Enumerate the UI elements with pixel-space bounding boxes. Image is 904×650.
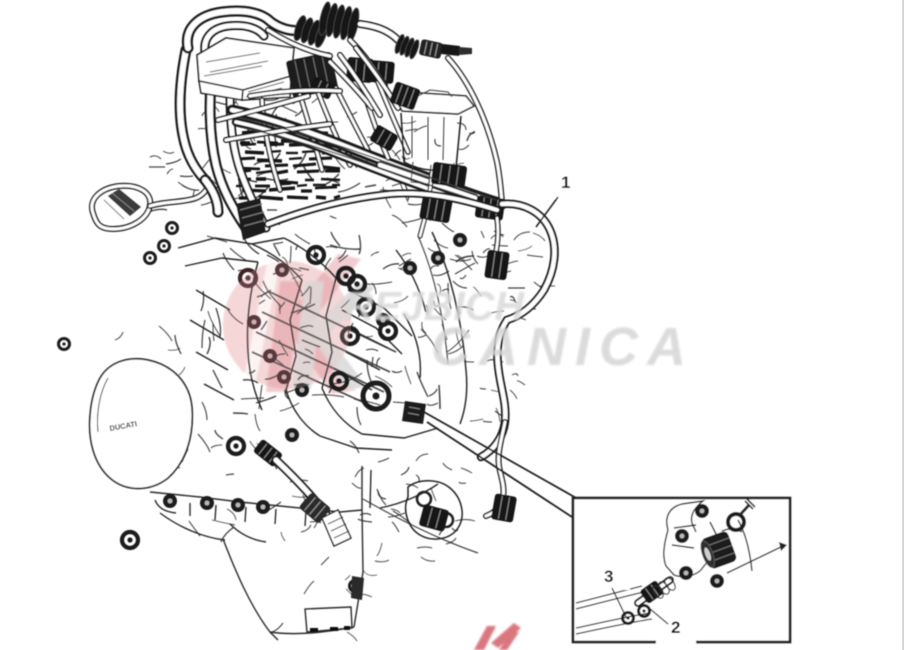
svg-text:CANICA: CANICA xyxy=(431,317,695,377)
svg-text:3: 3 xyxy=(604,567,613,586)
svg-text:2: 2 xyxy=(671,618,680,637)
svg-text:1: 1 xyxy=(561,173,570,192)
